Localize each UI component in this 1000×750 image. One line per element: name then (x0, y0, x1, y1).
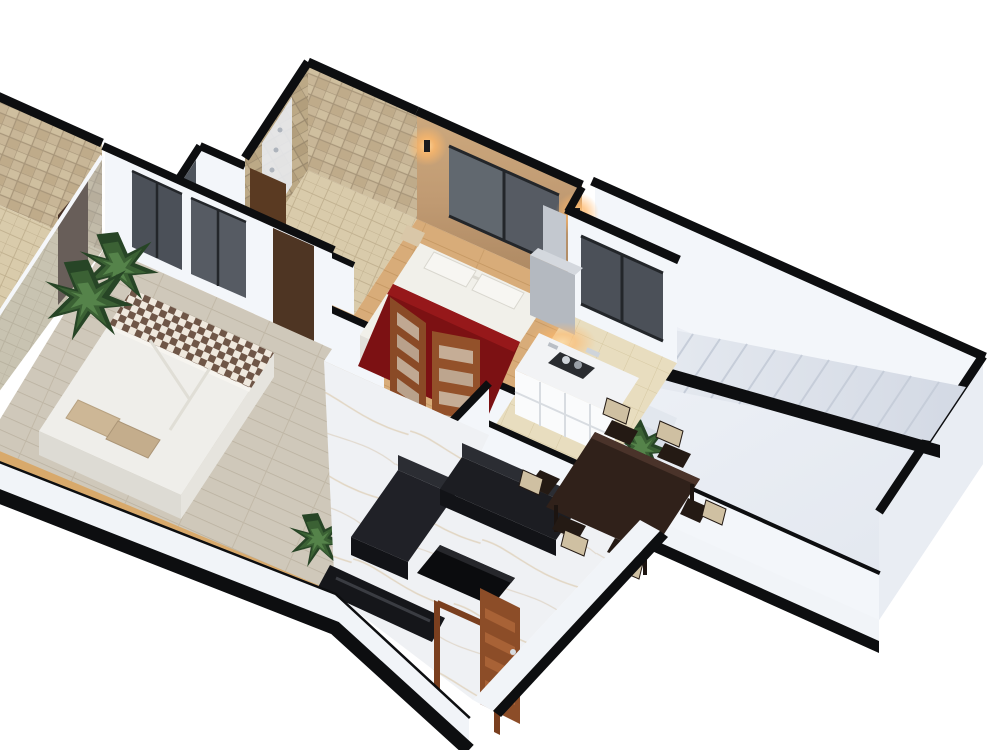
sconce-left (424, 140, 430, 152)
floor-plan-render (0, 0, 1000, 750)
bed2-bath-door (273, 228, 314, 341)
render-canvas (0, 0, 1000, 750)
door-handle (510, 649, 516, 655)
